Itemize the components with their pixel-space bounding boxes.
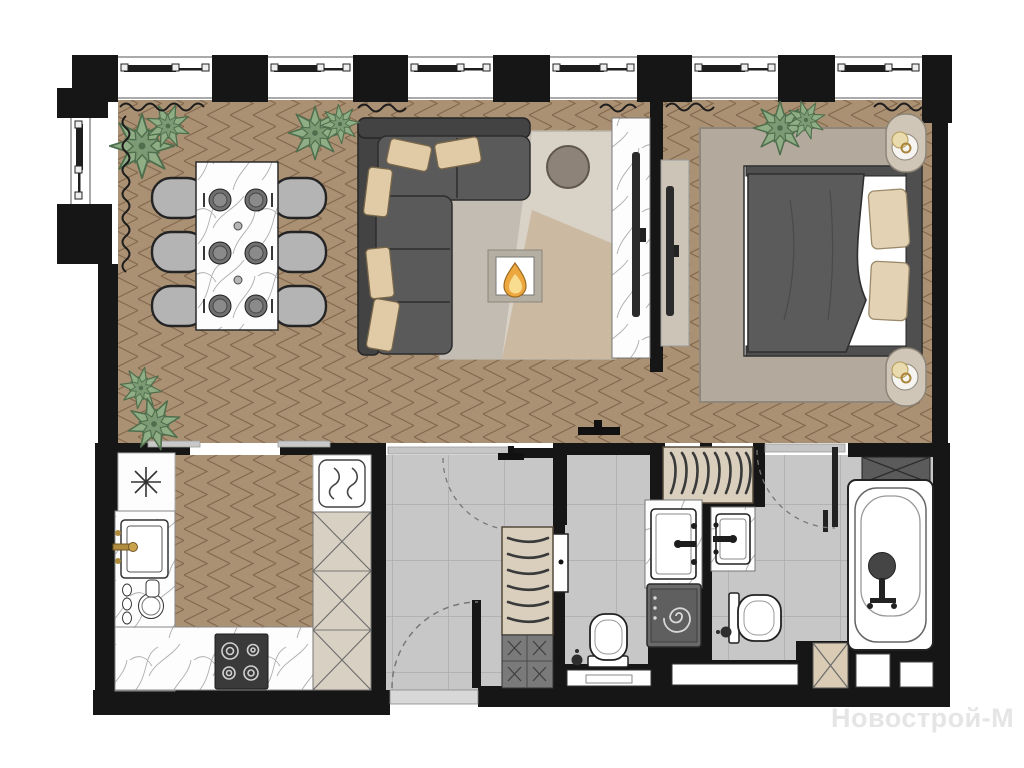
window [692, 56, 778, 99]
hall-wardrobe [502, 527, 553, 635]
tall-cabinets-x [313, 512, 371, 690]
cabinet-x-beige-small [813, 643, 848, 688]
appliance-wave [313, 455, 371, 512]
faucet-icon [713, 536, 731, 542]
nightstand-top [886, 114, 926, 172]
bed [744, 164, 922, 360]
watermark: Новострой-М [831, 703, 1021, 734]
window [408, 56, 493, 99]
dining-area [152, 162, 326, 330]
washing-machine [647, 584, 701, 647]
bathtub [848, 480, 933, 650]
guest-bathroom-door [552, 534, 568, 592]
tv-living [632, 152, 640, 317]
floor-plan-canvas [0, 0, 1024, 768]
toilet-brush-icon [721, 627, 732, 638]
duvet [748, 174, 866, 352]
coffee-table [547, 146, 589, 188]
tv-bedroom [666, 186, 674, 316]
master-sink [711, 507, 755, 571]
toilet-brush-icon [572, 655, 583, 666]
window [550, 56, 637, 99]
headboard [906, 164, 922, 360]
hallway [502, 527, 553, 688]
window [118, 56, 212, 99]
kitchen-cabinet-star [118, 453, 175, 511]
stove [215, 634, 268, 689]
tv-panel-living [612, 118, 650, 358]
guest-sink [645, 500, 702, 588]
floor-plan: Новострой-М [0, 0, 1024, 768]
fireplace [488, 250, 542, 302]
tv-panel-bedroom [661, 160, 689, 346]
window [268, 56, 353, 99]
drain-icon [869, 553, 896, 580]
bedroom-closet [663, 447, 753, 503]
window-left [70, 118, 92, 204]
shoe-cabinet-x [502, 635, 553, 688]
kitchen-sink [113, 520, 168, 578]
nightstand-bottom [886, 348, 926, 406]
window [835, 56, 922, 99]
